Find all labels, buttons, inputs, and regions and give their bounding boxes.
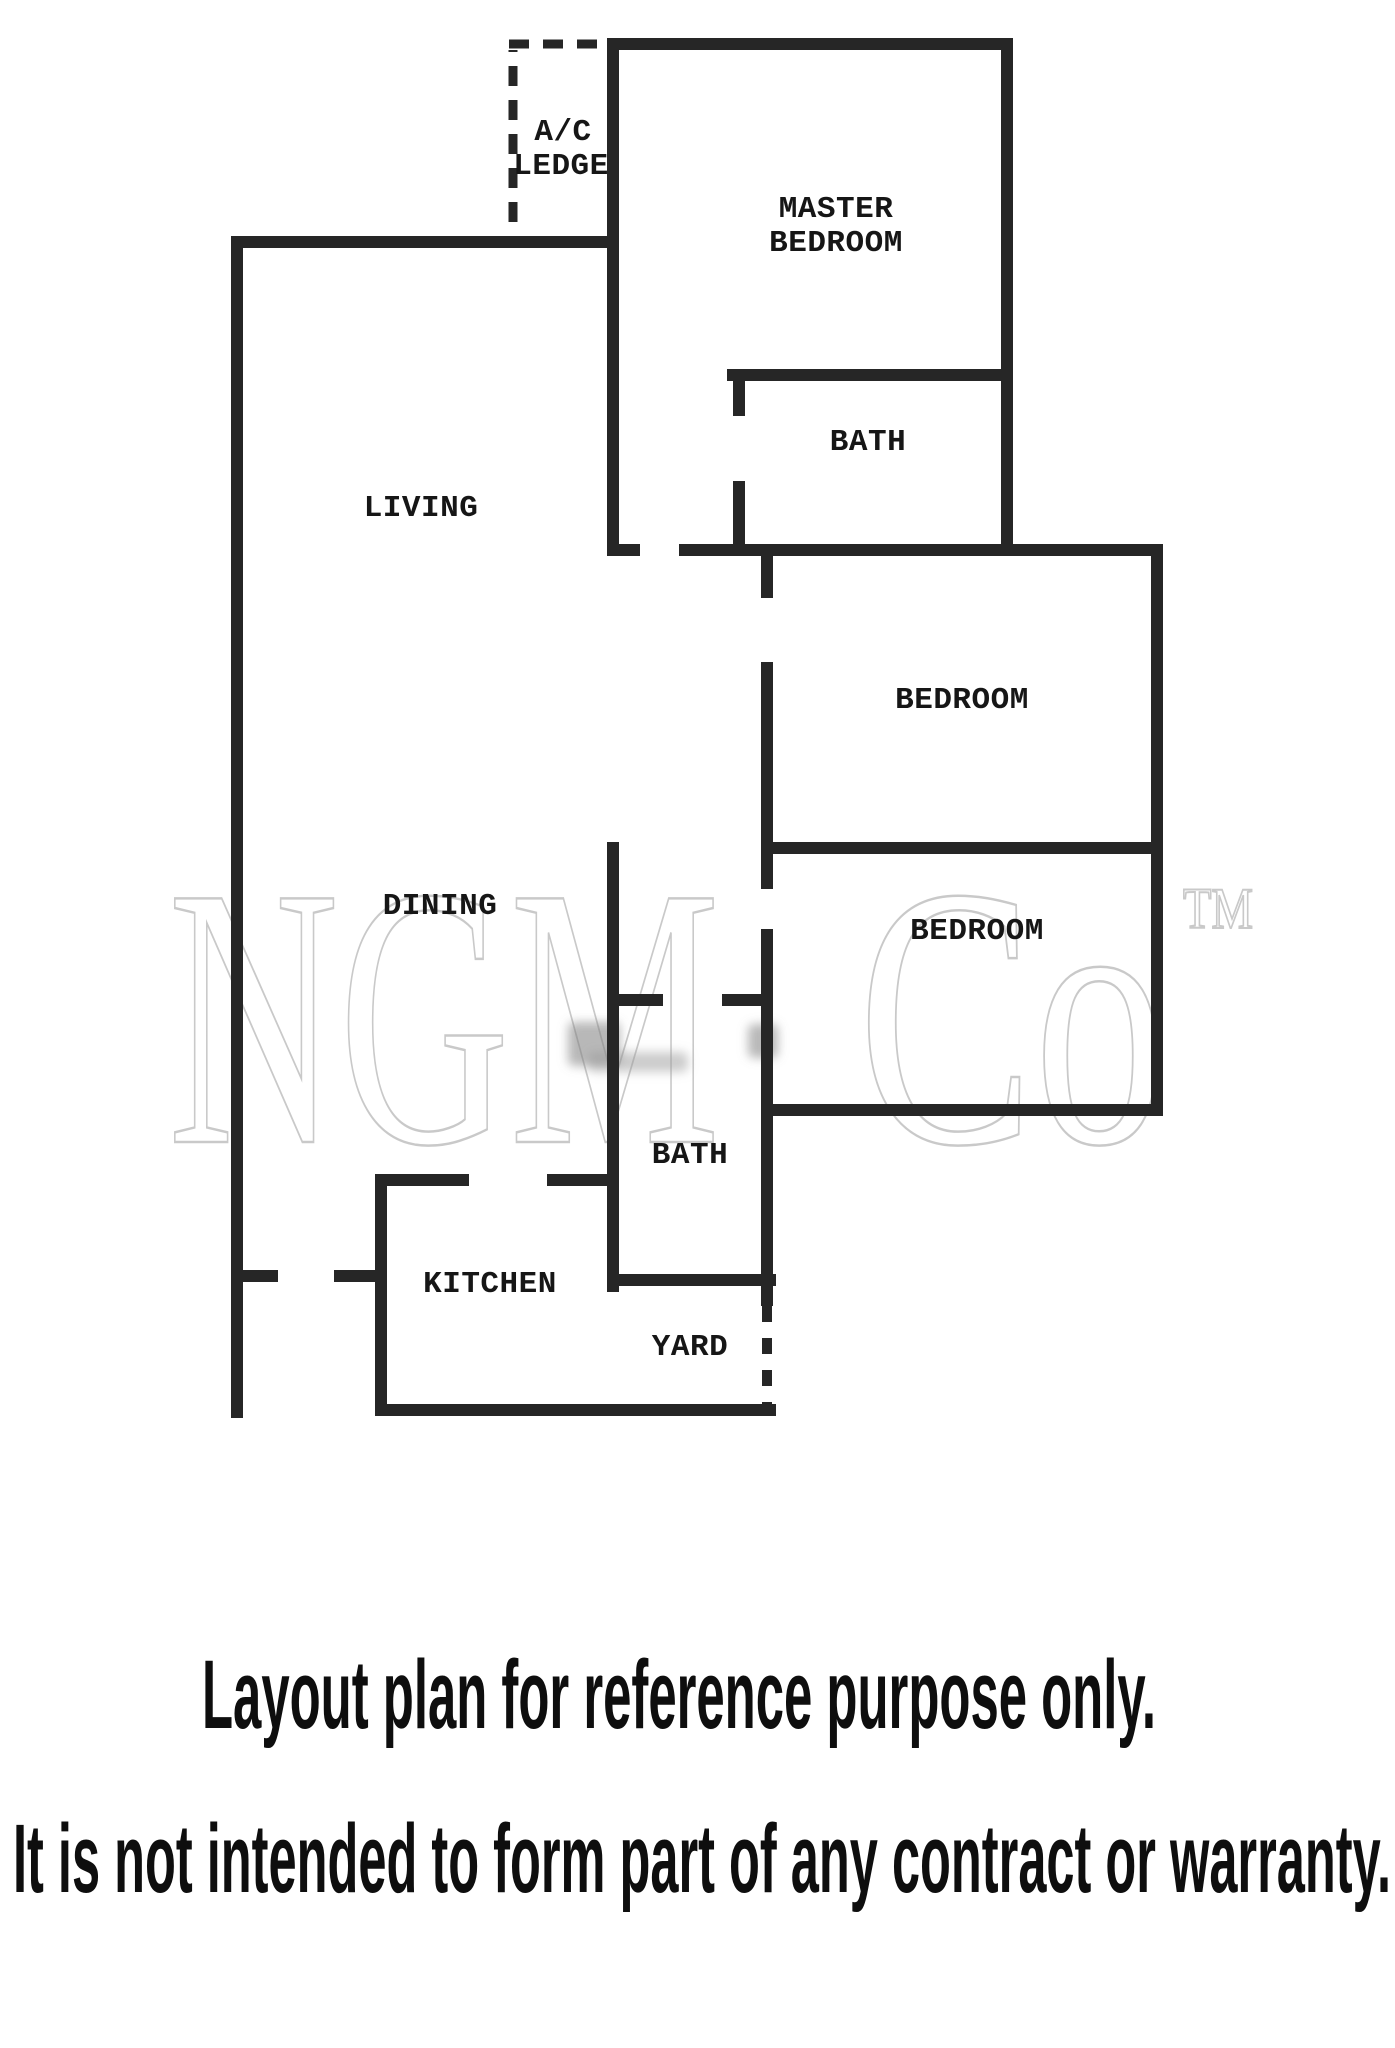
disclaimer: Layout plan for reference purpose only. … bbox=[13, 1640, 1391, 1913]
disclaimer-line2: It is not intended to form part of any c… bbox=[13, 1804, 1391, 1913]
room-label-master-bath: BATH bbox=[830, 425, 906, 460]
room-label-bedroom-lower: BEDROOM bbox=[910, 914, 1044, 949]
watermark-tm-mark: TM bbox=[1183, 876, 1253, 941]
watermark-name: NGM bbox=[168, 812, 720, 1223]
room-label-bedroom-upper: BEDROOM bbox=[895, 683, 1029, 718]
floor-plan-svg: NGM Co TM bbox=[0, 0, 1395, 2048]
floor-plan-page: NGM Co TM bbox=[0, 0, 1395, 2048]
room-label-master-bedroom-line1: MASTER bbox=[779, 192, 894, 227]
room-label-kitchen: KITCHEN bbox=[423, 1267, 557, 1302]
room-label-yard: YARD bbox=[652, 1330, 728, 1365]
room-label-living: LIVING bbox=[364, 491, 479, 526]
disclaimer-line1: Layout plan for reference purpose only. bbox=[202, 1640, 1156, 1749]
room-label-bath: BATH bbox=[652, 1138, 728, 1173]
room-label-dining: DINING bbox=[383, 889, 498, 924]
watermark-smudge bbox=[588, 1052, 688, 1072]
room-label-master-bedroom-line2: BEDROOM bbox=[769, 226, 903, 261]
room-label-ac-ledge-line2: LEDGE bbox=[513, 149, 609, 184]
room-label-ac-ledge-line1: A/C bbox=[534, 115, 591, 150]
watermark-suffix: Co bbox=[858, 812, 1166, 1223]
